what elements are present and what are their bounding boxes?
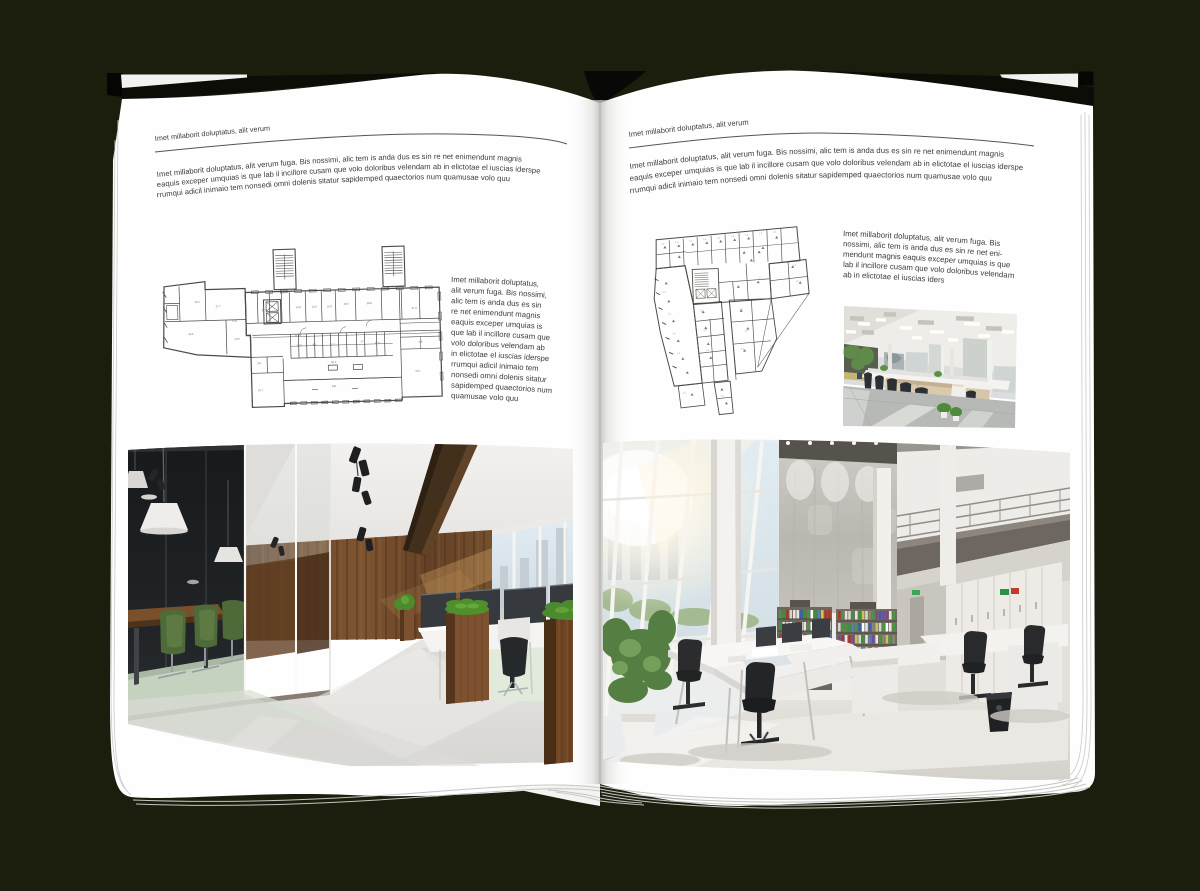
- svg-text:10.6: 10.6: [234, 337, 240, 341]
- svg-text:11.7: 11.7: [330, 342, 336, 346]
- svg-text:240: 240: [332, 384, 337, 388]
- svg-text:35.2: 35.2: [194, 300, 200, 304]
- svg-text:13.8: 13.8: [296, 305, 302, 309]
- svg-text:37.7: 37.7: [216, 304, 222, 308]
- svg-text:14.5: 14.5: [297, 343, 303, 347]
- svg-text:28.8: 28.8: [366, 301, 372, 305]
- svg-text:31.7: 31.7: [258, 388, 264, 392]
- svg-text:40.2: 40.2: [188, 332, 194, 336]
- svg-text:12.6: 12.6: [312, 305, 318, 309]
- svg-text:90.3: 90.3: [331, 360, 337, 364]
- svg-text:27.8: 27.8: [262, 308, 268, 312]
- svg-text:25.28: 25.28: [294, 333, 301, 337]
- svg-text:11.8: 11.8: [327, 304, 333, 308]
- svg-text:57.2: 57.2: [412, 306, 418, 310]
- svg-text:5.11: 5.11: [232, 319, 238, 323]
- svg-text:50.1: 50.1: [415, 369, 421, 373]
- svg-text:12.3: 12.3: [375, 341, 381, 345]
- svg-text:18.5: 18.5: [344, 302, 350, 306]
